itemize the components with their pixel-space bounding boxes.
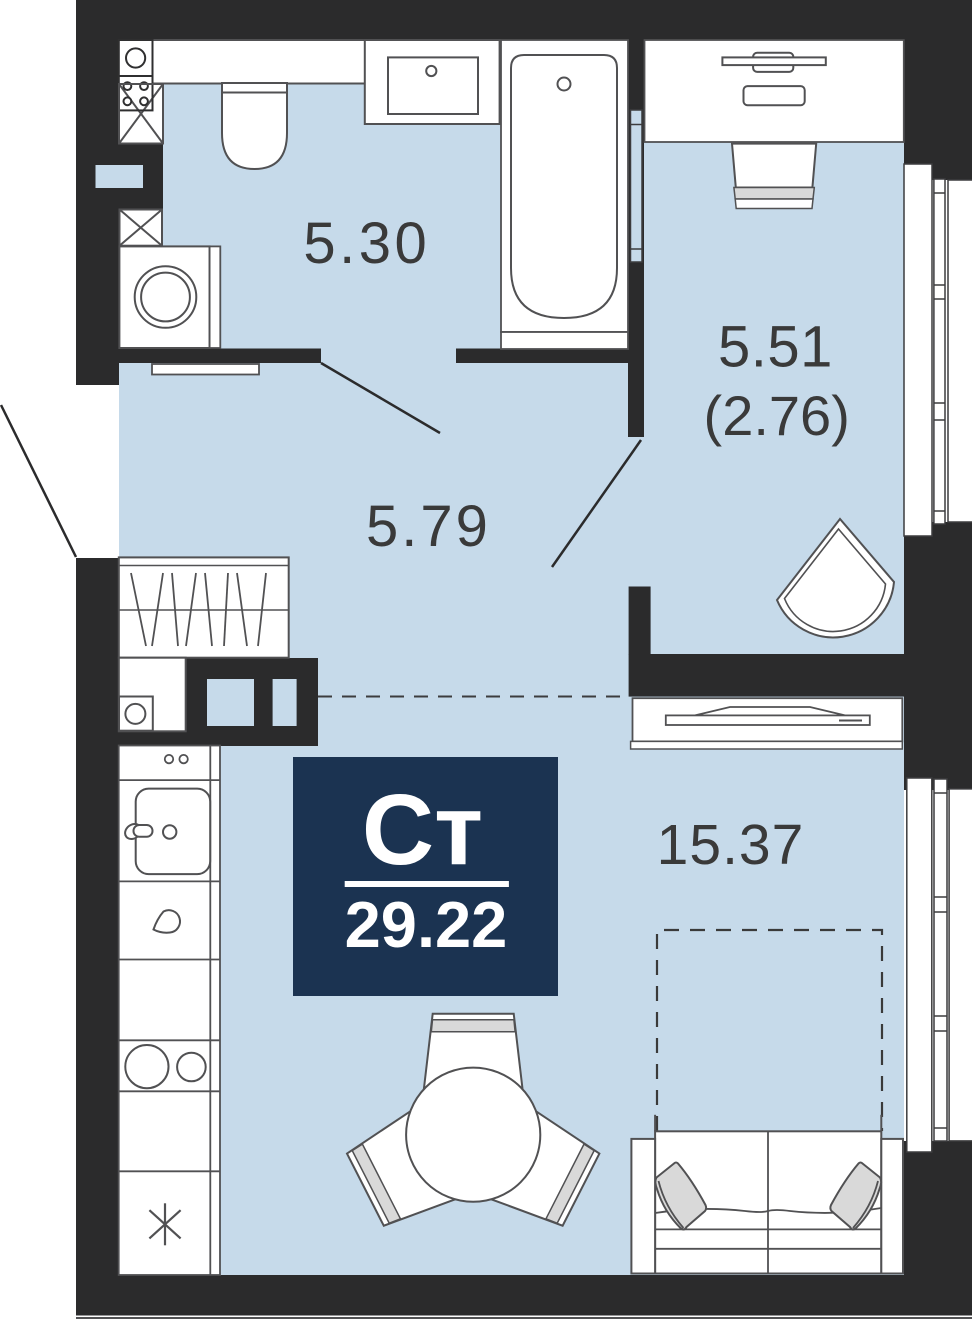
svg-text:29.22: 29.22 bbox=[345, 888, 508, 961]
svg-text:5.30: 5.30 bbox=[303, 211, 430, 276]
svg-text:5.51: 5.51 bbox=[718, 315, 833, 380]
svg-text:Ст: Ст bbox=[362, 774, 483, 886]
svg-text:5.79: 5.79 bbox=[366, 494, 491, 559]
svg-text:15.37: 15.37 bbox=[657, 813, 805, 877]
svg-text:(2.76): (2.76) bbox=[704, 384, 850, 447]
